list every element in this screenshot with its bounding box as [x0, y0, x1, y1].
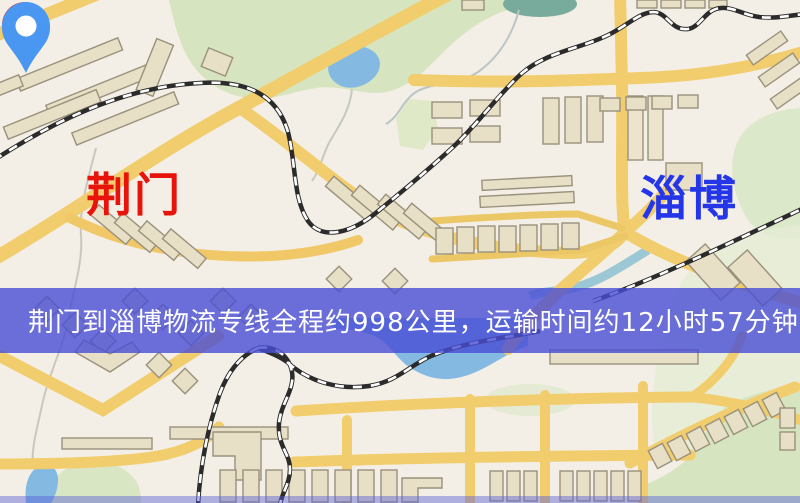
destination-pin-shape — [2, 2, 50, 73]
logistics-route-map: 荆门 淄博 荆门到淄博物流专线全程约998公里，运输时间约12小时57分钟. — [0, 0, 800, 503]
bottom-overlay-strip — [0, 496, 800, 503]
destination-marker-icon — [0, 0, 52, 76]
route-info-text: 荆门到淄博物流专线全程约998公里，运输时间约12小时57分钟. — [28, 302, 800, 339]
origin-city-label: 荆门 — [86, 172, 182, 218]
map-canvas — [0, 0, 800, 503]
route-info-banner: 荆门到淄博物流专线全程约998公里，运输时间约12小时57分钟. — [0, 288, 800, 353]
destination-pin-dot — [16, 16, 37, 37]
destination-city-label: 淄博 — [640, 176, 738, 223]
